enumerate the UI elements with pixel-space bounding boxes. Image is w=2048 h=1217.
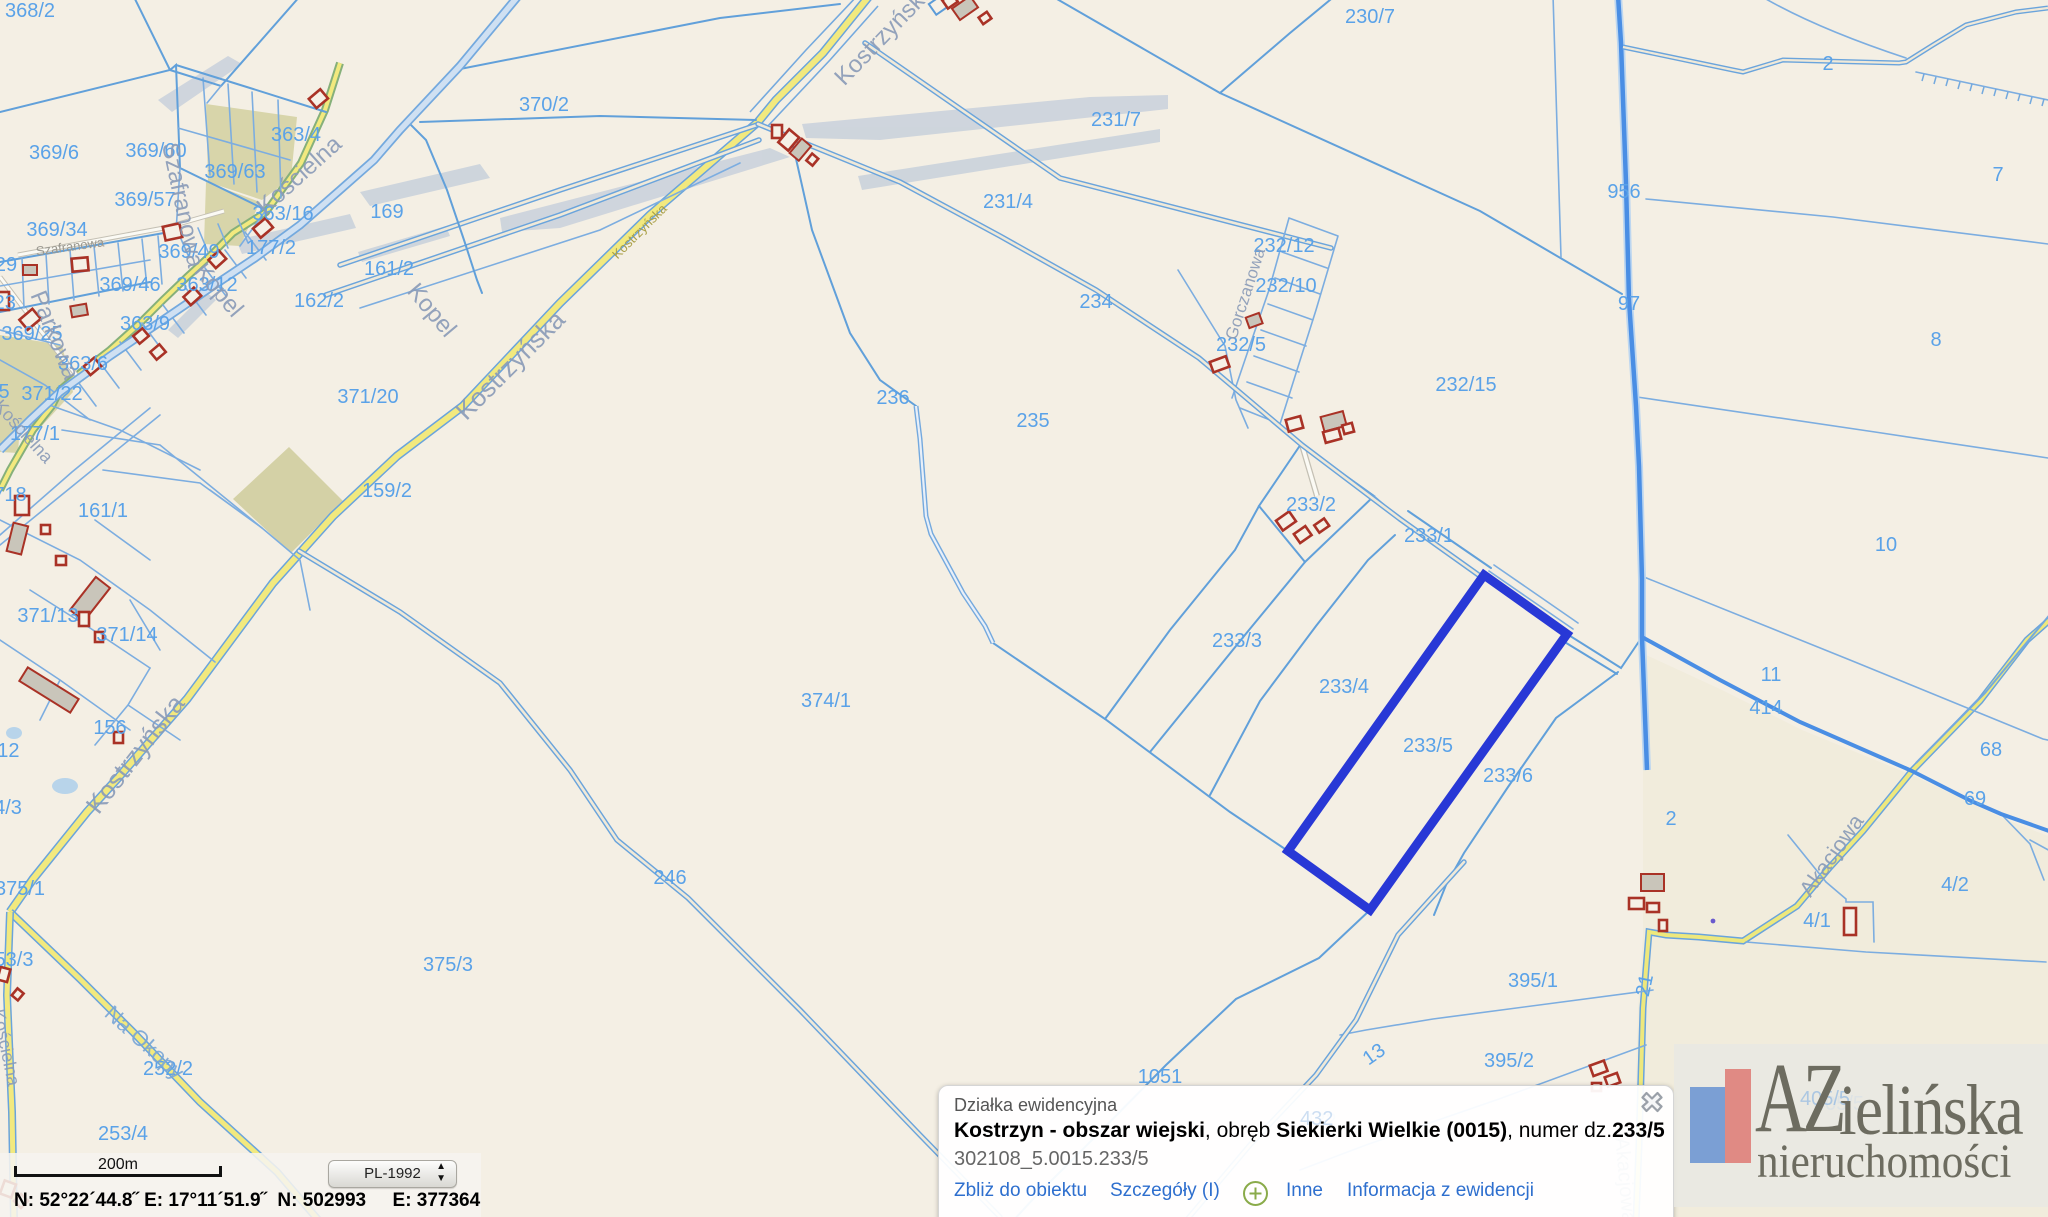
svg-text:161/2: 161/2 <box>364 258 414 280</box>
svg-text:234: 234 <box>1079 291 1112 313</box>
svg-text:2: 2 <box>1822 53 1833 75</box>
svg-text:368/2: 368/2 <box>5 0 55 22</box>
svg-text:374/1: 374/1 <box>801 690 851 712</box>
svg-text:414: 414 <box>1749 697 1782 719</box>
svg-text:4/2: 4/2 <box>1941 874 1969 896</box>
svg-text:169: 169 <box>370 201 403 223</box>
svg-text:68: 68 <box>1980 739 2002 761</box>
svg-text:53/3: 53/3 <box>0 949 33 971</box>
svg-text:159/2: 159/2 <box>362 480 412 502</box>
svg-text:10: 10 <box>1875 534 1897 556</box>
svg-text:156: 156 <box>93 717 126 739</box>
svg-text:8: 8 <box>1930 329 1941 351</box>
svg-text:233/1: 233/1 <box>1404 525 1454 547</box>
svg-text:2: 2 <box>1665 808 1676 830</box>
svg-text:1/12: 1/12 <box>0 740 19 762</box>
svg-text:233/3: 233/3 <box>1212 630 1262 652</box>
svg-text:371/20: 371/20 <box>337 386 398 408</box>
svg-text:21: 21 <box>1632 972 1658 998</box>
svg-text:371/13: 371/13 <box>17 605 78 627</box>
svg-text:233/5: 233/5 <box>1403 735 1453 757</box>
svg-text:29: 29 <box>0 254 17 276</box>
svg-text:69: 69 <box>1964 788 1986 810</box>
svg-text:371/22: 371/22 <box>21 383 82 405</box>
svg-text:4/1: 4/1 <box>1803 910 1831 932</box>
svg-text:97: 97 <box>1618 293 1640 315</box>
svg-text:369/63: 369/63 <box>204 161 265 183</box>
svg-text:161/1: 161/1 <box>78 500 128 522</box>
svg-text:231/4: 231/4 <box>983 191 1033 213</box>
svg-text:369/6: 369/6 <box>29 142 79 164</box>
svg-text:233/4: 233/4 <box>1319 676 1369 698</box>
svg-text:11: 11 <box>1761 664 1782 686</box>
svg-text:233/2: 233/2 <box>1286 494 1336 516</box>
svg-text:/23: /23 <box>0 292 16 314</box>
svg-text:363/4: 363/4 <box>271 124 321 146</box>
svg-text:956: 956 <box>1607 181 1640 203</box>
svg-text:371/14: 371/14 <box>96 624 157 646</box>
svg-text:235: 235 <box>1016 410 1049 432</box>
svg-text:230/7: 230/7 <box>1345 6 1395 28</box>
svg-text:395/1: 395/1 <box>1508 970 1558 992</box>
svg-text:177/2: 177/2 <box>246 237 296 259</box>
svg-text:231/7: 231/7 <box>1091 109 1141 131</box>
svg-text:162/2: 162/2 <box>294 290 344 312</box>
svg-text:4/3: 4/3 <box>0 797 22 819</box>
svg-text:233/6: 233/6 <box>1483 765 1533 787</box>
svg-text:232/15: 232/15 <box>1435 374 1496 396</box>
svg-text:363/9: 363/9 <box>120 313 170 335</box>
svg-text:395/2: 395/2 <box>1484 1050 1534 1072</box>
svg-text:375/3: 375/3 <box>423 954 473 976</box>
svg-text:7: 7 <box>1992 164 2003 186</box>
svg-text:369/46: 369/46 <box>99 274 160 296</box>
svg-text:370/2: 370/2 <box>519 94 569 116</box>
svg-text:232/10: 232/10 <box>1255 275 1316 297</box>
svg-text:236: 236 <box>876 387 909 409</box>
svg-text:375/1: 375/1 <box>0 878 45 900</box>
svg-text:246: 246 <box>653 867 686 889</box>
svg-text:718: 718 <box>0 484 27 506</box>
svg-text:253/4: 253/4 <box>98 1123 148 1145</box>
